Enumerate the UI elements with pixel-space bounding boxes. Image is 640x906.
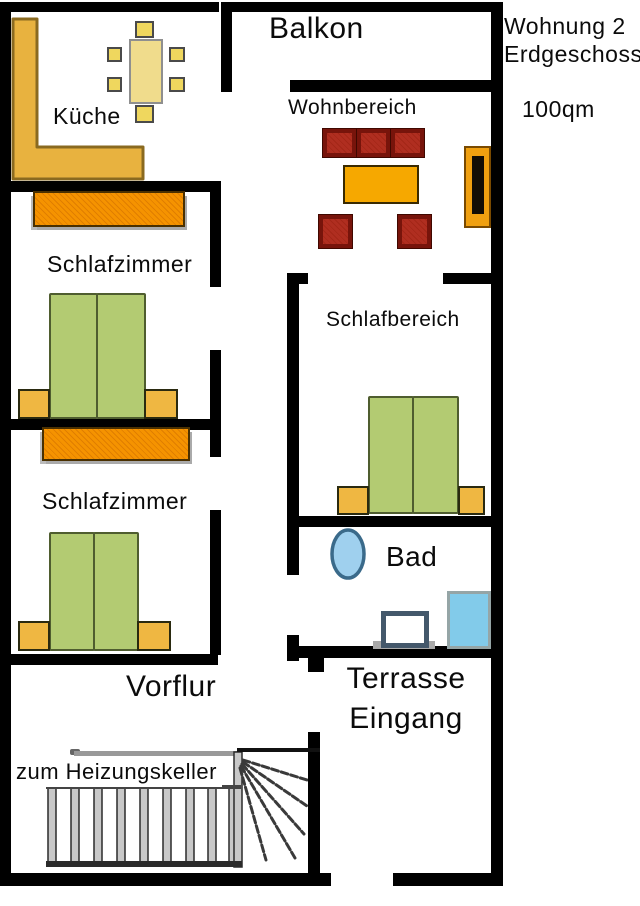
nightstand-3-left xyxy=(337,486,369,515)
label-eingang: Eingang xyxy=(313,699,499,739)
wall-corridor-1 xyxy=(210,181,221,287)
wall-right xyxy=(491,2,503,886)
bed-3-left xyxy=(368,396,414,514)
label-bad: Bad xyxy=(386,541,437,573)
plan-title: Wohnung 2 Erdgeschoss xyxy=(504,12,640,68)
label-wohnbereich: Wohnbereich xyxy=(288,96,417,120)
wall-bottom-left xyxy=(0,873,331,886)
stair-winder-steps xyxy=(240,760,307,860)
wall-terrasse-stairs xyxy=(308,732,320,874)
tv-cabinet xyxy=(464,146,491,228)
label-terrasse-eingang: Terrasse Eingang xyxy=(313,659,499,739)
wall-bottom-right xyxy=(393,873,503,886)
bed-1-left xyxy=(49,293,98,419)
wardrobe-2 xyxy=(42,427,190,461)
nightstand-2-right xyxy=(137,621,171,651)
wall-corridor-2 xyxy=(210,350,221,457)
sofa-seat-3 xyxy=(390,128,425,158)
stair-rail-tip xyxy=(70,749,80,755)
chair-left-2 xyxy=(107,77,122,92)
wall-corridor-3 xyxy=(210,510,221,655)
tv-screen xyxy=(472,156,484,214)
wall-rightwing-left-upper xyxy=(287,273,299,575)
kitchen-counter xyxy=(13,19,143,179)
floor-plan: Balkon Wohnung 2 Erdgeschoss 100qm Küche… xyxy=(0,0,640,906)
wall-wohn-schlaf-right xyxy=(443,273,503,284)
wall-schlafzimmer-vorflur xyxy=(8,654,218,665)
chair-left-1 xyxy=(107,47,122,62)
wall-top-left xyxy=(8,2,219,12)
wall-balcony-bottom xyxy=(290,80,503,92)
wall-balcony-left xyxy=(221,2,232,92)
label-balkon: Balkon xyxy=(269,12,364,46)
label-stairs: zum Heizungskeller xyxy=(14,759,222,787)
chair-top xyxy=(135,21,154,38)
chair-bottom xyxy=(135,105,154,123)
label-terrasse: Terrasse xyxy=(313,659,499,699)
wall-top-right xyxy=(223,2,503,12)
wall-left xyxy=(0,2,11,886)
wardrobe-1 xyxy=(33,191,185,227)
nightstand-1-left xyxy=(18,389,50,419)
chair-right-1 xyxy=(169,47,185,62)
label-schlafzimmer-unten: Schlafzimmer xyxy=(42,488,187,515)
armchair-left xyxy=(318,214,353,249)
nightstand-1-right xyxy=(144,389,178,419)
stair-handrail xyxy=(74,751,240,756)
sofa-seat-1 xyxy=(322,128,357,158)
bed-2-left xyxy=(49,532,95,651)
stair-bottom-edge xyxy=(46,861,242,867)
label-area: 100qm xyxy=(522,96,595,123)
wall-schlafbereich-bad xyxy=(289,516,503,527)
nightstand-2-left xyxy=(18,621,50,651)
label-kueche: Küche xyxy=(53,103,121,130)
armchair-right xyxy=(397,214,432,249)
dining-table xyxy=(129,39,163,104)
label-vorflur: Vorflur xyxy=(126,670,216,704)
toilet xyxy=(332,530,364,578)
label-schlafbereich: Schlafbereich xyxy=(326,308,460,332)
stair-winder-top-line xyxy=(237,748,320,752)
bed-3-right xyxy=(412,396,459,514)
sofa-seat-2 xyxy=(356,128,391,158)
coffee-table xyxy=(343,165,419,204)
bed-1-right xyxy=(96,293,146,419)
shower xyxy=(447,591,491,649)
bed-2-right xyxy=(93,532,139,651)
title-apartment: Wohnung 2 xyxy=(504,12,640,40)
label-schlafzimmer-oben: Schlafzimmer xyxy=(47,251,192,278)
title-floor: Erdgeschoss xyxy=(504,40,640,68)
washbasin xyxy=(381,611,429,648)
nightstand-3-right xyxy=(458,486,485,515)
chair-right-2 xyxy=(169,77,185,92)
